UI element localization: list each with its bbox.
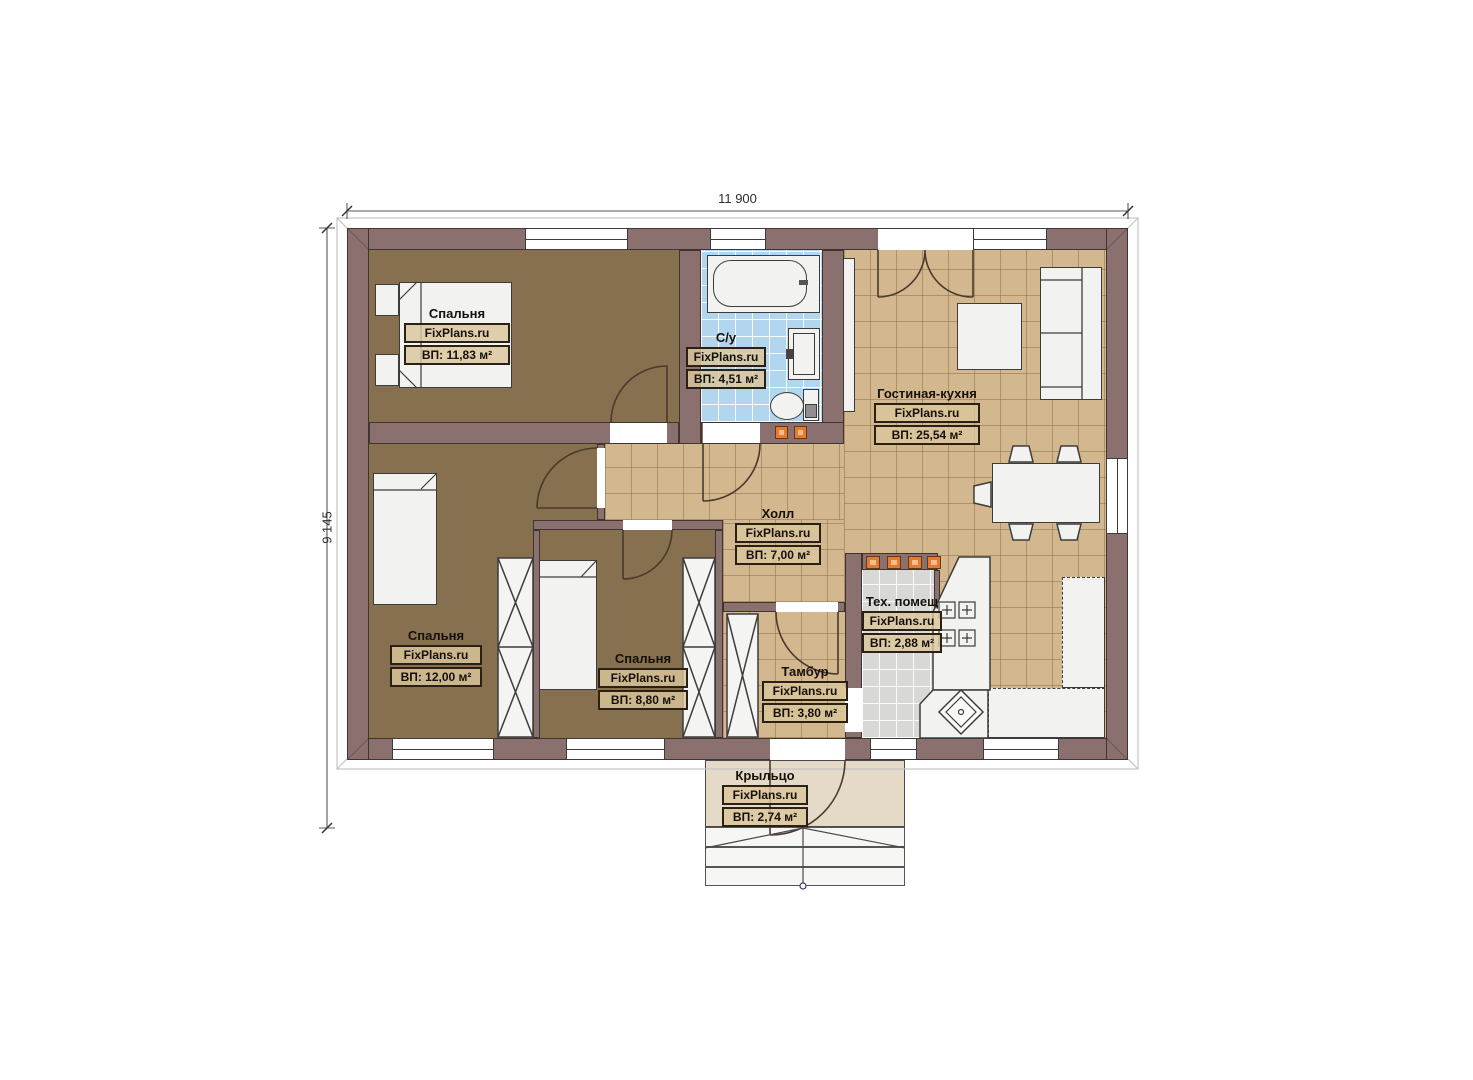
window-bedroom-3 <box>566 738 665 760</box>
vent-square-tech-3 <box>908 556 922 569</box>
area-box: ВП: 11,83 м² <box>404 345 510 365</box>
wall-bathroom-living <box>822 250 844 444</box>
room-name: С/у <box>686 330 766 345</box>
sofa <box>1040 267 1102 400</box>
porch-step-2 <box>705 847 905 867</box>
window-living-right <box>1106 458 1128 534</box>
single-bed-bedroom-2 <box>373 473 437 605</box>
vent-square-hall-2 <box>794 426 807 439</box>
room-name: Холл <box>735 506 821 521</box>
watermark-box: FixPlans.ru <box>686 347 766 367</box>
vent-square-tech-1 <box>866 556 880 569</box>
watermark-box: FixPlans.ru <box>874 403 980 423</box>
window-kitchen <box>983 738 1059 760</box>
bathtub-faucet <box>799 280 808 285</box>
wall-outer-left <box>347 228 369 760</box>
watermark-box: FixPlans.ru <box>762 681 848 701</box>
window-tech-room <box>870 738 917 760</box>
door-opening-bathroom <box>703 423 760 443</box>
vent-square-hall-1 <box>775 426 788 439</box>
area-box: ВП: 3,80 м² <box>762 703 848 723</box>
window-bedroom-2 <box>392 738 494 760</box>
area-box: ВП: 7,00 м² <box>735 545 821 565</box>
window-living-top <box>973 228 1047 250</box>
room-label-hall: Холл FixPlans.ru ВП: 7,00 м² <box>735 506 821 565</box>
area-box: ВП: 2,74 м² <box>722 807 808 827</box>
room-name: Спальня <box>404 306 510 321</box>
window-bedroom-1 <box>525 228 628 250</box>
door-opening-entrance <box>770 739 845 760</box>
watermark-box: FixPlans.ru <box>598 668 688 688</box>
single-bed-bedroom-3 <box>539 560 597 690</box>
watermark-box: FixPlans.ru <box>390 645 482 665</box>
door-opening-bedroom-2 <box>597 448 605 508</box>
floor-plan-canvas: Спальня FixPlans.ru ВП: 11,83 м² С/у Fix… <box>0 0 1473 1080</box>
dimension-width: 11 900 <box>690 191 785 206</box>
nightstand-bottom <box>375 354 399 386</box>
area-box: ВП: 12,00 м² <box>390 667 482 687</box>
room-name: Тамбур <box>762 664 848 679</box>
washbasin-bowl <box>793 333 815 375</box>
porch-step-3 <box>705 867 905 886</box>
door-opening-bedroom-1 <box>610 423 667 443</box>
door-opening-living-terrace <box>878 229 973 250</box>
watermark-box: FixPlans.ru <box>722 785 808 805</box>
room-label-tambour: Тамбур FixPlans.ru ВП: 3,80 м² <box>762 664 848 723</box>
toilet-bowl <box>770 392 804 420</box>
washbasin-tap <box>786 349 793 359</box>
nightstand-top <box>375 284 399 316</box>
room-label-bathroom: С/у FixPlans.ru ВП: 4,51 м² <box>686 330 766 389</box>
room-name: Крыльцо <box>722 768 808 783</box>
door-opening-bedroom-3 <box>623 520 672 530</box>
kitchen-counter-right <box>1062 577 1105 688</box>
room-label-bedroom-3: Спальня FixPlans.ru ВП: 8,80 м² <box>598 651 688 710</box>
kitchen-counter-bottom <box>988 688 1105 738</box>
toilet-flush-box <box>805 404 817 418</box>
room-label-porch: Крыльцо FixPlans.ru ВП: 2,74 м² <box>722 768 808 827</box>
dimension-height: 9 145 <box>320 496 335 560</box>
wall-bedroom3-right <box>715 530 723 738</box>
watermark-box: FixPlans.ru <box>735 523 821 543</box>
porch-step-1 <box>705 827 905 847</box>
area-box: ВП: 4,51 м² <box>686 369 766 389</box>
room-name: Спальня <box>598 651 688 666</box>
room-label-bedroom-1: Спальня FixPlans.ru ВП: 11,83 м² <box>404 306 510 365</box>
area-box: ВП: 8,80 м² <box>598 690 688 710</box>
room-name: Спальня <box>390 628 482 643</box>
watermark-box: FixPlans.ru <box>404 323 510 343</box>
dining-table <box>992 463 1100 523</box>
watermark-box: FixPlans.ru <box>862 611 942 631</box>
vent-square-tech-4 <box>927 556 941 569</box>
area-box: ВП: 2,88 м² <box>862 633 942 653</box>
vent-square-tech-2 <box>887 556 901 569</box>
bathtub-basin <box>713 260 807 307</box>
area-box: ВП: 25,54 м² <box>874 425 980 445</box>
window-bathroom <box>710 228 766 250</box>
room-label-tech-room: Тех. помещ FixPlans.ru ВП: 2,88 м² <box>862 594 942 653</box>
square-table <box>957 303 1022 370</box>
room-label-bedroom-2: Спальня FixPlans.ru ВП: 12,00 м² <box>390 628 482 687</box>
room-label-living-kitchen: Гостиная-кухня FixPlans.ru ВП: 25,54 м² <box>874 386 980 445</box>
room-name: Тех. помещ <box>862 594 942 609</box>
wall-bedroom2-bedroom3 <box>533 530 540 738</box>
room-name: Гостиная-кухня <box>874 386 980 401</box>
door-opening-tambour <box>776 602 838 612</box>
